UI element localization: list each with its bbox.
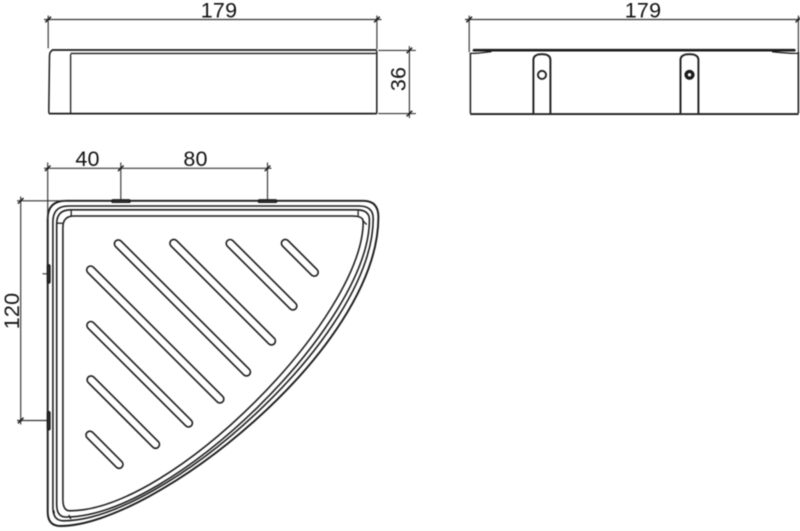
svg-text:120: 120 xyxy=(0,293,24,329)
svg-text:80: 80 xyxy=(183,147,207,171)
svg-text:179: 179 xyxy=(625,0,661,22)
svg-text:179: 179 xyxy=(201,0,237,22)
svg-text:40: 40 xyxy=(75,147,99,171)
svg-text:36: 36 xyxy=(387,67,411,91)
